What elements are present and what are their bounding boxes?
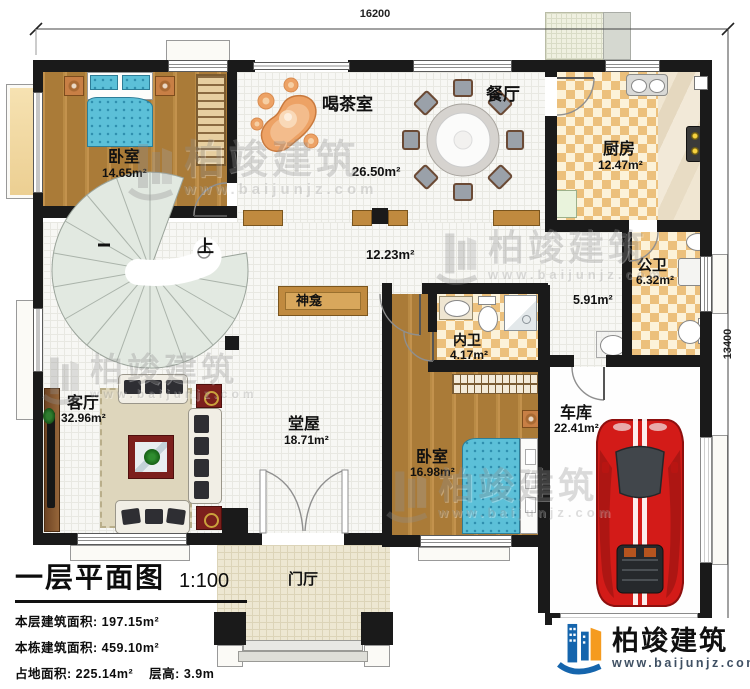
cushion	[124, 380, 141, 394]
bedroom2-window-sill	[418, 547, 510, 561]
wall-segment	[33, 372, 43, 545]
wall-segment	[606, 355, 712, 367]
garage-door-frame	[712, 435, 728, 565]
wall-segment	[43, 206, 237, 218]
wall-segment	[538, 285, 550, 613]
cushion	[194, 481, 209, 499]
plant	[43, 408, 55, 424]
room-label-living: 客厅	[67, 396, 99, 412]
stat-footprint-and-height: 占地面积: 225.14m² 层高: 3.9m	[15, 663, 247, 682]
area-label-tea-room: 26.50m²	[352, 165, 400, 178]
area-label-garage: 22.41m²	[554, 422, 599, 434]
garage-side-door	[700, 437, 712, 563]
floor-garage	[550, 367, 700, 613]
window	[413, 60, 512, 72]
hall-cabinet	[352, 210, 372, 226]
title-rule	[15, 600, 247, 603]
side-table	[196, 384, 222, 408]
bath-window-sill	[712, 254, 728, 314]
window	[253, 62, 350, 70]
cushion	[194, 437, 209, 455]
cushion	[166, 380, 183, 394]
window	[605, 60, 660, 72]
wall-segment	[222, 508, 248, 538]
wall-segment	[382, 535, 422, 547]
window	[77, 533, 187, 545]
decor-bowl	[96, 206, 140, 219]
balcony-slider	[33, 92, 43, 193]
porch-column	[361, 612, 393, 645]
kitchen-flue-cap	[603, 12, 631, 60]
sofa	[115, 500, 190, 534]
bed	[87, 97, 153, 147]
pillow	[122, 75, 150, 90]
dimension-right: 13400	[722, 314, 734, 374]
toilet	[678, 320, 702, 344]
area-label-inner-bath: 4.17m²	[450, 349, 488, 361]
shower	[504, 295, 537, 331]
hall-cabinet	[493, 210, 540, 226]
wardrobe	[196, 74, 226, 166]
sink-basin	[649, 79, 665, 93]
sink-basin	[631, 79, 647, 93]
wall-segment	[348, 60, 415, 72]
window	[168, 60, 228, 72]
plant	[144, 449, 160, 465]
corner-shelf	[694, 76, 708, 90]
room-label-kitchen: 厨房	[603, 142, 635, 158]
room-label-tea-room: 喝茶室	[322, 96, 373, 113]
bed-blanket-edge	[520, 438, 538, 534]
wall-segment	[545, 60, 557, 77]
logo-website: www.baijunjz.com	[612, 657, 750, 670]
wall-segment	[382, 283, 392, 535]
cushion	[194, 415, 209, 433]
area-label-bedroom1: 14.65m²	[102, 167, 147, 179]
room-label-public-bath: 公卫	[637, 258, 667, 273]
shrine-console	[278, 286, 368, 316]
room-label-foyer: 门厅	[288, 572, 318, 587]
room-label-bedroom2: 卧室	[416, 450, 448, 466]
window	[33, 308, 43, 372]
wall-segment	[545, 220, 629, 232]
wall-segment	[428, 294, 437, 332]
kitchen-sink	[626, 74, 668, 96]
cushion	[145, 380, 162, 394]
dimension-top: 16200	[340, 8, 410, 20]
area-label-public-bath: 6.32m²	[636, 274, 674, 286]
room-label-main-hall: 堂屋	[288, 417, 320, 433]
wall-segment	[657, 220, 712, 232]
room-label-inner-bath: 内卫	[453, 333, 481, 347]
room-label-dining: 餐厅	[486, 86, 520, 103]
area-label-kitchen: 12.47m²	[598, 159, 643, 171]
entry-step	[243, 640, 363, 651]
bedroom1-bay-window	[166, 40, 230, 62]
hall-cabinet	[388, 210, 408, 226]
wall-segment	[33, 60, 170, 72]
logo-building-icon	[556, 620, 606, 676]
toilet	[478, 306, 498, 332]
cushion	[145, 509, 163, 524]
title-block: 一层平面图 1:100 本层建筑面积: 197.15m² 本栋建筑面积: 459…	[15, 556, 247, 689]
wall-segment	[33, 533, 79, 545]
window	[700, 256, 712, 312]
page-title: 一层平面图	[15, 556, 165, 596]
entry-step	[238, 651, 368, 662]
room-label-garage: 车库	[560, 406, 592, 422]
sofa	[188, 408, 222, 504]
wall-segment	[622, 232, 632, 355]
room-label-bedroom1: 卧室	[108, 150, 140, 166]
logo-text: 柏竣建筑	[612, 627, 750, 655]
wall-segment	[227, 60, 237, 183]
side-table	[196, 506, 222, 530]
area-label-main-hall: 18.71m²	[284, 434, 329, 446]
wall-segment	[33, 60, 43, 92]
brand-logo: 柏竣建筑 www.baijunjz.com	[552, 618, 750, 678]
burner	[691, 147, 699, 155]
blanket-fold	[525, 473, 536, 489]
closet-hangers	[452, 374, 540, 394]
wall-segment	[700, 312, 712, 437]
wall-segment	[510, 60, 607, 72]
wall-segment	[33, 193, 43, 308]
blanket-fold	[525, 497, 536, 513]
column	[372, 208, 388, 224]
burner	[691, 132, 699, 140]
washbasin	[444, 300, 470, 317]
nightstand	[64, 76, 84, 96]
plan-scale: 1:100	[179, 570, 229, 593]
bed	[462, 438, 520, 534]
tv	[47, 412, 55, 508]
toilet-tank	[478, 296, 496, 305]
wall-segment	[700, 563, 712, 625]
blanket-fold	[525, 449, 536, 465]
hall-cabinet	[243, 210, 283, 226]
area-label-living: 32.96m²	[61, 412, 106, 424]
area-label-bedroom2: 16.98m²	[410, 466, 455, 478]
floor-plan-canvas: 神龛	[0, 0, 750, 689]
side-table-decor	[204, 513, 219, 528]
cushion	[166, 508, 186, 525]
pillow	[90, 75, 118, 90]
column	[225, 336, 239, 350]
kitchen-flue	[545, 12, 605, 60]
area-label-corridor: 5.91m²	[573, 294, 613, 307]
coffee-table	[128, 435, 174, 479]
window	[420, 535, 512, 547]
shower-drain	[522, 315, 531, 324]
wall-segment	[422, 283, 548, 294]
cushion	[121, 508, 141, 525]
wall-segment	[428, 360, 548, 372]
cushion	[194, 459, 209, 477]
side-table-decor	[204, 391, 219, 406]
wall-segment	[545, 116, 557, 232]
room-label-shrine: 神龛	[296, 294, 322, 307]
sofa	[118, 374, 188, 404]
stat-building-area: 本栋建筑面积: 459.10m²	[15, 637, 247, 656]
stairs-up-label: 上	[197, 238, 214, 255]
stat-floor-area: 本层建筑面积: 197.15m²	[15, 611, 247, 630]
nightstand	[155, 76, 175, 96]
area-label-hall: 12.23m²	[366, 248, 414, 261]
